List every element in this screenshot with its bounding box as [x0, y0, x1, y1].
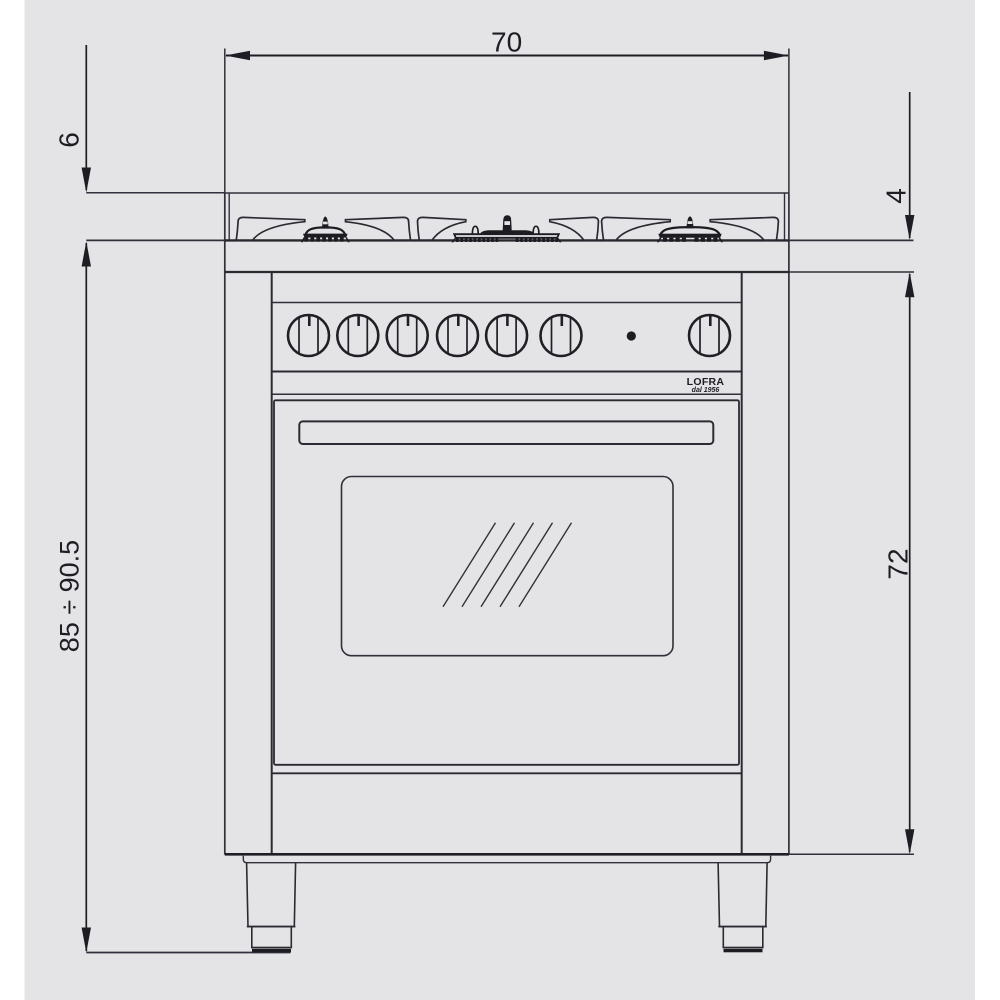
- svg-text:72: 72: [883, 548, 914, 579]
- svg-text:4: 4: [881, 188, 912, 204]
- svg-text:dal 1956: dal 1956: [692, 387, 720, 394]
- svg-text:6: 6: [54, 132, 85, 148]
- svg-text:70: 70: [491, 27, 522, 58]
- svg-text:85 ÷ 90.5: 85 ÷ 90.5: [55, 540, 85, 652]
